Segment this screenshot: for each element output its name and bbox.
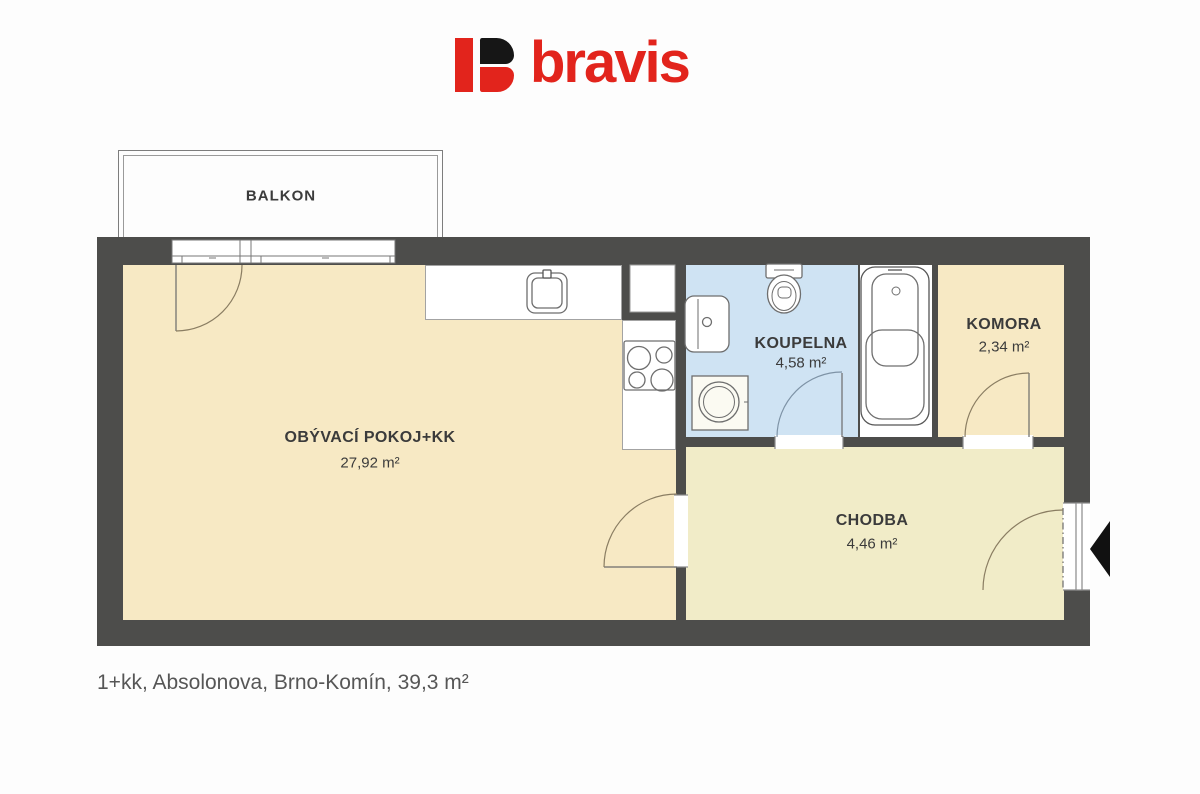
bathroom-area: 4,58 m² [776, 355, 827, 372]
entrance-door [983, 503, 1110, 590]
listing-caption: 1+kk, Absolonova, Brno-Komín, 39,3 m² [97, 671, 469, 695]
storage-door [963, 373, 1033, 449]
kitchen-niche [630, 265, 675, 312]
floorplan-page: bravis [0, 0, 1200, 794]
bathroom-label: KOUPELNA [755, 335, 848, 353]
toilet-icon [766, 264, 802, 313]
living-room-label: OBÝVACÍ POKOJ+KK [284, 429, 455, 447]
living-hallway-door [604, 494, 688, 567]
bathroom-door [775, 372, 843, 449]
entrance-arrow-icon [1090, 521, 1110, 577]
stove-icon [624, 341, 675, 391]
balcony-window [172, 240, 395, 263]
storage-label: KOMORA [966, 316, 1041, 334]
kitchen-sink-icon [527, 270, 567, 313]
living-room-area: 27,92 m² [340, 455, 399, 472]
washbasin-icon [685, 296, 729, 352]
hallway-area: 4,46 m² [847, 536, 898, 553]
bathtub-icon [861, 267, 929, 425]
washing-machine-icon [692, 376, 748, 430]
balcony-door [176, 265, 242, 331]
storage-area: 2,34 m² [979, 339, 1030, 356]
hallway-label: CHODBA [836, 512, 909, 530]
balcony-label: BALKON [246, 188, 316, 205]
